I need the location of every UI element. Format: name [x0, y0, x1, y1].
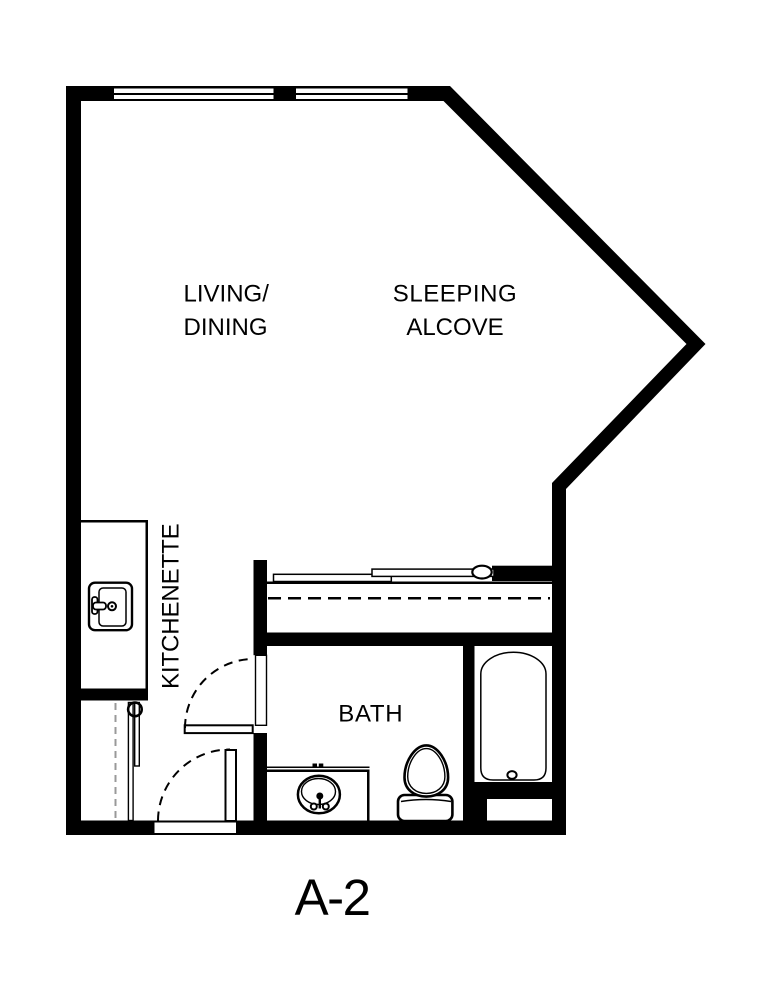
svg-text:DINING: DINING — [184, 314, 268, 341]
svg-text:SLEEPING: SLEEPING — [393, 281, 517, 308]
svg-text:BATH: BATH — [338, 701, 403, 728]
svg-text:A-2: A-2 — [295, 869, 370, 926]
svg-text:ALCOVE: ALCOVE — [406, 314, 503, 341]
svg-text:KITCHENETTE: KITCHENETTE — [158, 523, 185, 689]
svg-text:LIVING/: LIVING/ — [184, 281, 270, 308]
